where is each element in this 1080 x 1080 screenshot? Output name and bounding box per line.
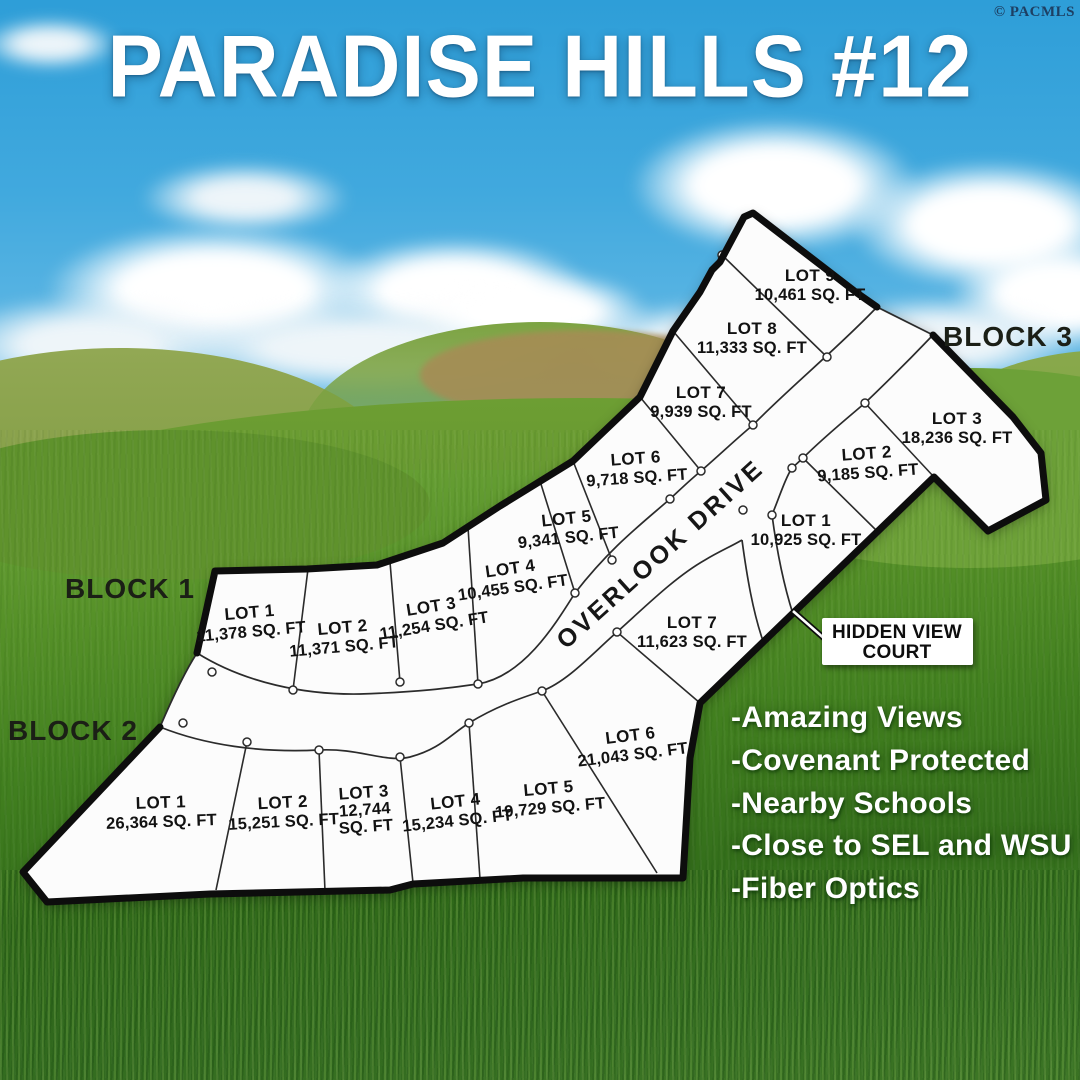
feature-item: -Amazing Views — [731, 697, 1072, 740]
lot-area: 11,623 SQ. FT — [637, 633, 747, 651]
plat-map: BLOCK 1 BLOCK 2 BLOCK 3 OVERLOOK DRIVE L… — [0, 0, 1080, 1080]
hidden-view-court-callout: HIDDEN VIEW COURT — [793, 611, 973, 665]
lot-name: LOT 3 — [932, 409, 982, 428]
lot-label: LOT 3 12,744 SQ. FT — [336, 781, 394, 838]
lot-name: LOT 1 — [781, 511, 831, 530]
lot-area: 18,236 SQ. FT — [902, 429, 1013, 447]
lot-name: LOT 9 — [785, 266, 835, 285]
block-2-label: BLOCK 2 — [8, 715, 138, 746]
lot-name: LOT 2 — [841, 442, 892, 464]
lot-area: 10,461 SQ. FT — [755, 286, 866, 304]
feature-list: -Amazing Views -Covenant Protected -Near… — [731, 697, 1072, 911]
flyer: BLOCK 1 BLOCK 2 BLOCK 3 OVERLOOK DRIVE L… — [0, 0, 1080, 1080]
feature-item: -Covenant Protected — [731, 740, 1072, 783]
lot-name: LOT 8 — [727, 319, 777, 338]
street-hidden-view-line2: COURT — [862, 642, 931, 663]
callout-leader-line-inner — [793, 611, 826, 640]
lot-area: 10,925 SQ. FT — [751, 531, 862, 549]
lot-area: 11,333 SQ. FT — [697, 339, 807, 357]
lot-area: SQ. FT — [338, 816, 393, 838]
feature-item: -Close to SEL and WSU — [731, 825, 1072, 868]
lot-name: LOT 1 — [135, 792, 186, 813]
feature-item: -Nearby Schools — [731, 783, 1072, 826]
lot-name: LOT 2 — [257, 792, 308, 814]
block-1-label: BLOCK 1 — [65, 573, 195, 604]
lot-area: 9,939 SQ. FT — [650, 403, 751, 421]
street-hidden-view-line1: HIDDEN VIEW — [832, 622, 962, 643]
page-title: PARADISE HILLS #12 — [0, 16, 1080, 118]
watermark: © PACMLS — [994, 4, 1075, 21]
lot-name: LOT 7 — [667, 613, 717, 632]
block-3-label: BLOCK 3 — [943, 321, 1073, 352]
lot-name: LOT 6 — [610, 447, 661, 469]
lot-name: LOT 7 — [676, 383, 726, 402]
feature-item: -Fiber Optics — [731, 868, 1072, 911]
